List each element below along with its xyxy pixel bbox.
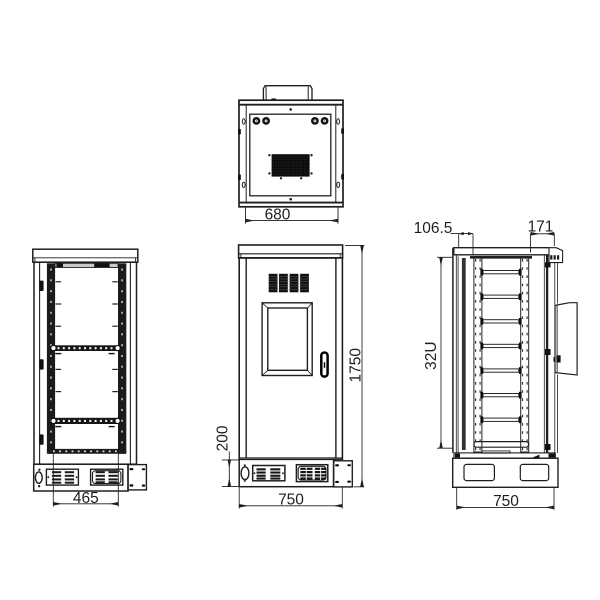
svg-text:465: 465 bbox=[73, 490, 99, 507]
svg-text:680: 680 bbox=[265, 206, 291, 223]
svg-text:200: 200 bbox=[215, 425, 232, 451]
svg-text:32U: 32U bbox=[423, 341, 440, 369]
svg-text:171: 171 bbox=[528, 219, 554, 236]
svg-text:106.5: 106.5 bbox=[414, 220, 453, 237]
svg-text:1750: 1750 bbox=[347, 348, 364, 383]
svg-text:750: 750 bbox=[278, 492, 304, 509]
svg-text:750: 750 bbox=[493, 493, 519, 510]
